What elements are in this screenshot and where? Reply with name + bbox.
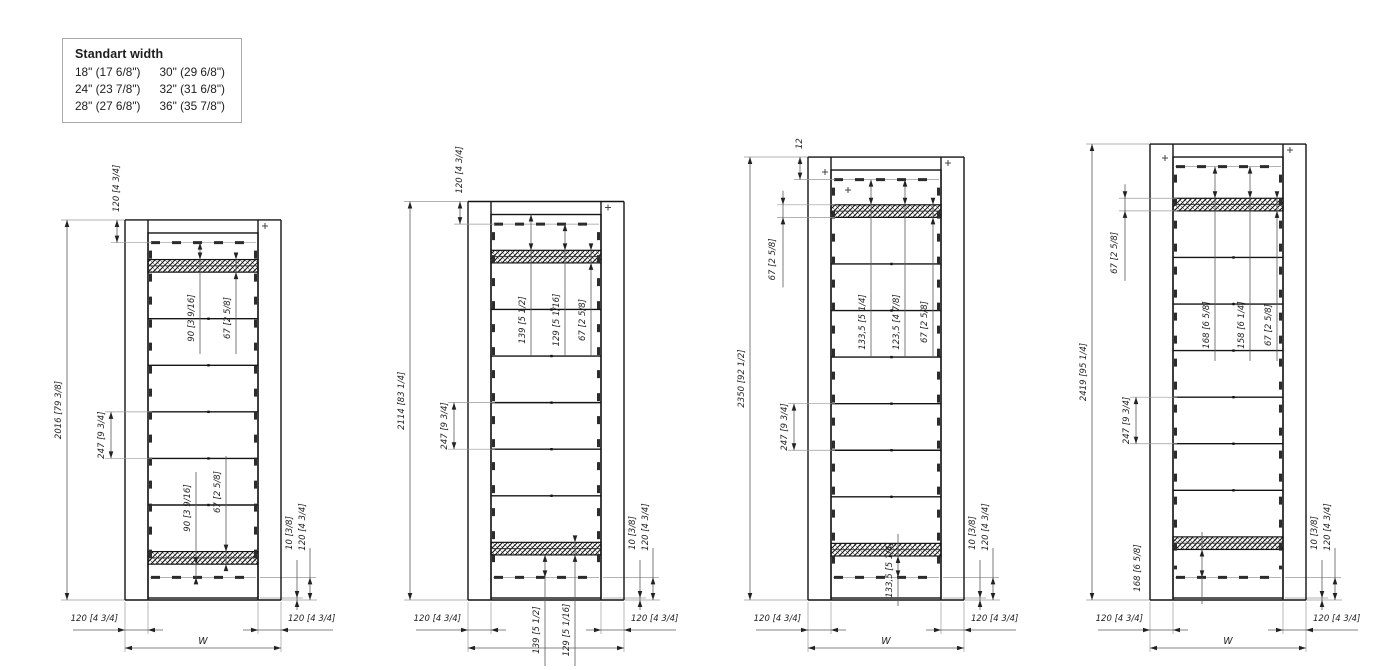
dim-arrow: [234, 272, 239, 279]
overall-height-label: 2350 [92 1/2]: [737, 349, 747, 407]
rail-mark: [207, 457, 209, 459]
rail-mark: [207, 318, 209, 320]
dim-arrow: [589, 243, 594, 250]
dim-arrow: [798, 157, 803, 164]
jamb-width-label: 120 [4 3/4]: [754, 614, 801, 624]
dim-arrow: [1134, 437, 1139, 444]
dim-arrow: [781, 198, 786, 205]
dim-arrow: [529, 243, 534, 250]
dim-arrow: [461, 628, 468, 633]
jamb-width-label: 120 [4 3/4]: [1313, 614, 1360, 624]
dim-arrow: [308, 593, 313, 600]
dim-arrow: [748, 593, 753, 600]
rail-mark: [1232, 396, 1234, 398]
dim-arrow: [458, 202, 463, 209]
dim-arrow: [931, 217, 936, 224]
top-dim-label: 12: [795, 138, 805, 149]
door-elevation-1: 2016 [79 3/8]120 [4 3/4]247 [9 3/4]90 [3…: [54, 165, 335, 652]
dim-label: 90 [3 9/16]: [183, 484, 193, 531]
rail-mark: [890, 263, 892, 265]
dim-arrow: [1090, 593, 1095, 600]
dim-arrow: [65, 220, 70, 227]
dim-arrow: [308, 577, 313, 584]
dim-arrow: [234, 253, 239, 260]
rail-mark: [550, 495, 552, 497]
dim-label: 129 [5 1/16]: [562, 604, 572, 657]
dim-arrow: [65, 593, 70, 600]
dim-arrow: [274, 646, 281, 651]
jamb-width-label: 120 [4 3/4]: [971, 614, 1018, 624]
rail-mark: [207, 504, 209, 506]
dim-arrow: [792, 404, 797, 411]
pitch-dim-label: 247 [9 3/4]: [440, 402, 450, 449]
dim-label: 139 [5 1/2]: [532, 606, 542, 653]
dim-arrow: [1333, 593, 1338, 600]
dim-arrow: [281, 628, 288, 633]
dim-arrow: [931, 198, 936, 205]
rail-mark: [1232, 256, 1234, 258]
dim-arrow: [408, 593, 413, 600]
dim-arrow: [115, 220, 120, 227]
dim-arrow: [1299, 646, 1306, 651]
dim-arrow: [1200, 549, 1205, 556]
dim-arrow: [1213, 191, 1218, 198]
dim-arrow: [801, 628, 808, 633]
dim-arrow: [1333, 577, 1338, 584]
dim-arrow: [934, 628, 941, 633]
dim-arrow: [491, 628, 498, 633]
dim-arrow: [869, 180, 874, 187]
pitch-dim-label: 247 [9 3/4]: [1122, 397, 1132, 444]
overall-height-label: 2016 [79 3/8]: [54, 381, 64, 439]
bottom-rail-label: 120 [4 3/4]: [298, 503, 308, 550]
door-elevation-2: 2114 [83 1/4]120 [4 3/4]247 [9 3/4]139 […: [397, 146, 678, 666]
dim-arrow: [115, 236, 120, 243]
rail-mark: [890, 356, 892, 358]
rail-mark: [890, 496, 892, 498]
dim-arrow: [991, 577, 996, 584]
dim-label: 67 [2 5/8]: [1264, 304, 1274, 346]
floor-gap-label: 10 [3/8]: [628, 516, 638, 550]
dim-arrow: [831, 628, 838, 633]
dim-arrow: [964, 628, 971, 633]
jamb-width-label: 120 [4 3/4]: [414, 614, 461, 624]
dim-arrow: [1320, 591, 1325, 598]
dim-label: 158 [6 1/4]: [1237, 301, 1247, 348]
dim-label: 129 [5 1/16]: [552, 294, 562, 347]
dim-arrow: [251, 628, 258, 633]
door-leaf: [491, 215, 601, 598]
overall-height-label: 2419 [95 1/4]: [1079, 343, 1089, 401]
dim-arrow: [1276, 628, 1283, 633]
overall-width-label: W: [881, 636, 891, 647]
hatch-height-label: 67 [2 5/8]: [768, 238, 778, 280]
dim-arrow: [224, 545, 229, 552]
dim-arrow: [617, 646, 624, 651]
dim-arrow: [978, 591, 983, 598]
door-elevation-3: 2350 [92 1/2]12247 [9 3/4]67 [2 5/8]133,…: [737, 138, 1018, 652]
dim-arrow: [295, 591, 300, 598]
dim-label: 90 [3 9/16]: [187, 294, 197, 341]
dim-label: 133,5 [5 1/4]: [858, 294, 868, 349]
technical-drawing-sheet: Standart width 18" (17 6/8") 30" (29 6/8…: [0, 0, 1400, 670]
dim-arrow: [468, 646, 475, 651]
dim-arrow: [573, 555, 578, 562]
dim-arrow: [1248, 167, 1253, 174]
jamb-width-label: 120 [4 3/4]: [71, 614, 118, 624]
rail-mark: [1232, 303, 1234, 305]
dim-arrow: [1320, 600, 1325, 607]
bottom-rail-label: 120 [4 3/4]: [981, 503, 991, 550]
pitch-dim-label: 247 [9 3/4]: [780, 403, 790, 450]
dim-arrow: [1275, 191, 1280, 198]
dim-arrow: [125, 646, 132, 651]
dim-arrow: [792, 443, 797, 450]
rail-mark: [890, 402, 892, 404]
dim-arrow: [224, 564, 229, 571]
dim-arrow: [957, 646, 964, 651]
dim-arrow: [148, 628, 155, 633]
dim-arrow: [452, 442, 457, 449]
dim-arrow: [748, 157, 753, 164]
bottom-rail-label: 120 [4 3/4]: [641, 503, 651, 550]
dim-label: 168 [6 5/8]: [1133, 544, 1143, 591]
rail-mark: [207, 364, 209, 366]
dim-arrow: [1123, 191, 1128, 198]
dim-arrow: [1123, 211, 1128, 218]
jamb-width-label: 120 [4 3/4]: [288, 614, 335, 624]
dim-arrow: [903, 198, 908, 205]
dim-arrow: [1150, 646, 1157, 651]
overall-width-label: W: [1223, 636, 1233, 647]
dim-arrow: [638, 591, 643, 598]
dim-arrow: [869, 198, 874, 205]
dim-arrow: [109, 412, 114, 419]
dim-arrow: [118, 628, 125, 633]
rail-mark: [890, 449, 892, 451]
dim-arrow: [624, 628, 631, 633]
rail-mark: [550, 448, 552, 450]
bottom-rail-label: 120 [4 3/4]: [1323, 503, 1333, 550]
door-leaf: [831, 170, 941, 598]
door-elevation-diagram: 2016 [79 3/8]120 [4 3/4]247 [9 3/4]90 [3…: [0, 0, 1400, 670]
dim-arrow: [781, 217, 786, 224]
rail-mark: [1232, 443, 1234, 445]
dim-arrow: [529, 215, 534, 222]
rail-mark: [1232, 489, 1234, 491]
rail-mark: [1232, 349, 1234, 351]
rail-mark: [207, 411, 209, 413]
dim-arrow: [1306, 628, 1313, 633]
overall-height-label: 2114 [83 1/4]: [397, 372, 407, 430]
dim-arrow: [198, 253, 203, 260]
dim-arrow: [573, 535, 578, 542]
dim-arrow: [1134, 397, 1139, 404]
dim-arrow: [808, 646, 815, 651]
dim-arrow: [651, 593, 656, 600]
hatch-height-label: 67 [2 5/8]: [1110, 232, 1120, 274]
pitch-dim-label: 247 [9 3/4]: [97, 411, 107, 458]
dim-arrow: [452, 403, 457, 410]
door-leaf: [148, 233, 258, 598]
dim-label: 67 [2 5/8]: [213, 471, 223, 513]
top-dim-label: 120 [4 3/4]: [455, 146, 465, 193]
dim-arrow: [563, 243, 568, 250]
rail-mark: [550, 355, 552, 357]
dim-arrow: [651, 577, 656, 584]
top-dim-label: 120 [4 3/4]: [112, 165, 122, 212]
door-leaf: [1173, 157, 1283, 598]
dim-arrow: [896, 556, 901, 563]
dim-arrow: [991, 593, 996, 600]
rail-mark: [550, 401, 552, 403]
floor-gap-label: 10 [3/8]: [1310, 516, 1320, 550]
jamb-width-label: 120 [4 3/4]: [631, 614, 678, 624]
dim-label: 123,5 [4 7/8]: [892, 294, 902, 349]
dim-label: 67 [2 5/8]: [578, 299, 588, 341]
dim-arrow: [1143, 628, 1150, 633]
dim-arrow: [458, 217, 463, 224]
dim-label: 133,5 [5 1/4]: [885, 542, 895, 597]
dim-arrow: [1173, 628, 1180, 633]
dim-label: 168 [6 5/8]: [1202, 301, 1212, 348]
overall-width-label: W: [198, 636, 208, 647]
dim-arrow: [1275, 211, 1280, 218]
floor-gap-label: 10 [3/8]: [968, 516, 978, 550]
jamb-width-label: 120 [4 3/4]: [1096, 614, 1143, 624]
dim-arrow: [589, 263, 594, 270]
dim-arrow: [798, 173, 803, 180]
dim-arrow: [295, 600, 300, 607]
dim-label: 67 [2 5/8]: [920, 301, 930, 343]
dim-label: 67 [2 5/8]: [223, 297, 233, 339]
dim-arrow: [1248, 191, 1253, 198]
dim-arrow: [1213, 167, 1218, 174]
dim-arrow: [594, 628, 601, 633]
dim-arrow: [1090, 144, 1095, 151]
dim-label: 139 [5 1/2]: [518, 296, 528, 343]
dim-arrow: [109, 451, 114, 458]
dim-arrow: [638, 600, 643, 607]
floor-gap-label: 10 [3/8]: [285, 516, 295, 550]
dim-arrow: [408, 202, 413, 209]
dim-arrow: [978, 600, 983, 607]
door-elevation-4: 2419 [95 1/4]247 [9 3/4]67 [2 5/8]168 [6…: [1079, 144, 1360, 652]
dim-arrow: [543, 555, 548, 562]
